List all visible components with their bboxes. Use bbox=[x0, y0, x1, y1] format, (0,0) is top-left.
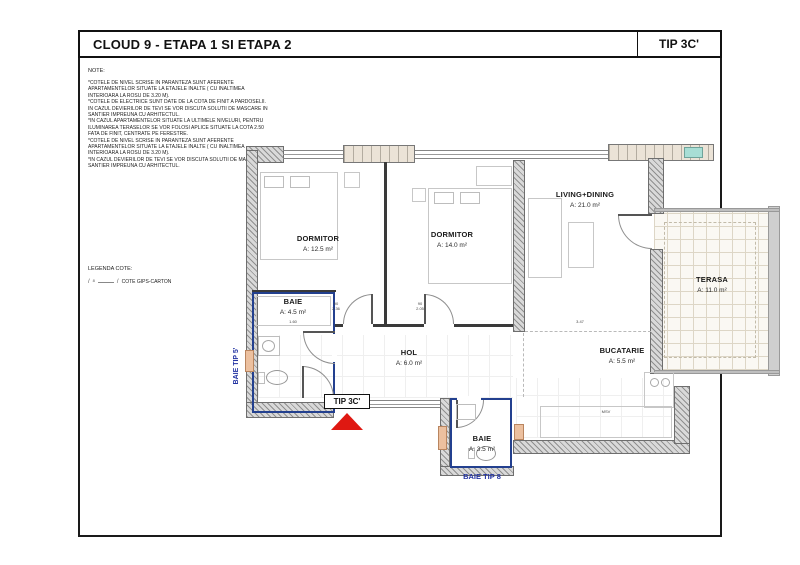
wall-between-bedrooms bbox=[384, 162, 387, 326]
room-label-baie-1: BAIE A: 4.5 m² bbox=[280, 297, 306, 316]
toilet-tank bbox=[258, 372, 265, 384]
legend-tick-icon: / bbox=[88, 279, 90, 285]
dim-baie1-width: 1.60 bbox=[289, 320, 297, 325]
legend-tick-icon: / bbox=[117, 279, 119, 285]
sheet-border-bottom bbox=[78, 535, 722, 537]
window-hall-south bbox=[368, 400, 442, 408]
wall-living-terrace bbox=[650, 249, 663, 374]
room-name: HOL bbox=[396, 348, 422, 357]
wall-hall-north-b bbox=[373, 324, 424, 327]
kitchen-counter-right bbox=[644, 372, 674, 408]
window-glass-top-right bbox=[684, 147, 703, 158]
door-arc-bedroom1 bbox=[343, 294, 373, 324]
baie-tip8-label: BAIE TIP 8 bbox=[463, 472, 501, 481]
legend-heading: LEGENDA COTE: bbox=[88, 266, 132, 272]
dim-door1: 90 2.36 bbox=[332, 302, 340, 312]
room-label-dormitor-2: DORMITOR A: 14.0 m² bbox=[431, 230, 473, 249]
sink-fixture bbox=[456, 404, 476, 420]
title-bar: CLOUD 9 - ETAPA 1 SI ETAPA 2 TIP 3C' bbox=[78, 30, 722, 58]
wall-fixture bbox=[514, 424, 524, 440]
pillow bbox=[434, 192, 454, 204]
note-heading: NOTE: bbox=[88, 68, 105, 74]
door-leaf-bedroom1 bbox=[371, 294, 373, 324]
room-name: BAIE bbox=[469, 434, 495, 443]
room-name: DORMITOR bbox=[297, 234, 339, 243]
door-leaf-bedroom2 bbox=[424, 294, 426, 324]
wall-hall-north-a bbox=[335, 324, 343, 327]
legend-line-icon bbox=[98, 282, 114, 283]
window-dormitor1 bbox=[283, 150, 343, 159]
door-leaf-bathroom1 bbox=[303, 331, 335, 333]
wall-terrace-top bbox=[654, 208, 780, 212]
wall-fixture bbox=[438, 426, 447, 450]
wall-kitchen-bottom bbox=[513, 440, 690, 454]
room-label-living: LIVING+DINING A: 21.0 m² bbox=[556, 190, 614, 209]
entrance-marker-icon bbox=[331, 413, 363, 430]
project-title: CLOUD 9 - ETAPA 1 SI ETAPA 2 bbox=[80, 37, 637, 52]
room-label-baie-2: BAIE A: 3.5 m² bbox=[469, 434, 495, 453]
sheet-border-left bbox=[78, 30, 80, 537]
nightstand bbox=[412, 188, 426, 202]
legend-item-label: COTE GIPS-CARTON bbox=[122, 279, 172, 285]
sink-bowl bbox=[262, 340, 275, 352]
divider-living-kitchen bbox=[525, 331, 651, 332]
room-label-hol: HOL A: 6.0 m² bbox=[396, 348, 422, 367]
pillow bbox=[264, 176, 284, 188]
wall-pier-top bbox=[343, 145, 415, 163]
room-name: TERASA bbox=[696, 275, 728, 284]
legend-number: 8 bbox=[93, 278, 95, 283]
pillow bbox=[460, 192, 480, 204]
window-living bbox=[513, 150, 608, 159]
legend-row: / 8 / COTE GIPS-CARTON bbox=[88, 279, 171, 285]
room-label-bucatarie: BUCATARIE A: 5.5 m² bbox=[600, 346, 645, 365]
room-area: A: 4.5 m² bbox=[280, 309, 306, 316]
room-name: BAIE bbox=[280, 297, 306, 306]
room-area: A: 11.0 m² bbox=[696, 287, 728, 294]
room-name: LIVING+DINING bbox=[556, 190, 614, 199]
wall-right-upper bbox=[648, 158, 664, 214]
table-outline bbox=[568, 222, 594, 268]
wall-hall-north-c bbox=[454, 324, 513, 327]
wall-terrace-right bbox=[768, 206, 780, 376]
door-arc-bedroom2 bbox=[424, 294, 454, 324]
nightstand bbox=[344, 172, 360, 188]
door-leaf-terrace bbox=[618, 214, 652, 216]
room-area: A: 5.5 m² bbox=[600, 358, 645, 365]
baie-tip5-label: BAIE TIP 5' bbox=[233, 330, 245, 402]
pillow bbox=[290, 176, 310, 188]
dim-living: 3.47 bbox=[576, 320, 584, 325]
room-area: A: 14.0 m² bbox=[431, 242, 473, 249]
door-leaf-entrance bbox=[302, 366, 304, 398]
toilet-fixture bbox=[266, 370, 288, 385]
wall-fixture bbox=[245, 350, 254, 372]
dim-kitchen-note: MSV bbox=[602, 410, 611, 415]
room-label-terasa: TERASA A: 11.0 m² bbox=[696, 275, 728, 294]
room-area: A: 21.0 m² bbox=[556, 202, 614, 209]
apartment-type-title: TIP 3C' bbox=[637, 32, 720, 56]
room-area: A: 6.0 m² bbox=[396, 360, 422, 367]
kitchen-sink-bowl bbox=[661, 378, 670, 387]
room-name: BUCATARIE bbox=[600, 346, 645, 355]
room-label-dormitor-1: DORMITOR A: 12.5 m² bbox=[297, 234, 339, 253]
kitchen-sink-bowl bbox=[650, 378, 659, 387]
wall-kitchen-right bbox=[674, 386, 690, 444]
wardrobe-outline bbox=[476, 166, 512, 186]
door-arc-terrace bbox=[618, 215, 652, 249]
room-area: A: 12.5 m² bbox=[297, 246, 339, 253]
room-area: A: 3.5 m² bbox=[469, 446, 495, 453]
unit-type-box: TIP 3C' bbox=[324, 394, 370, 409]
divider-hall-kitchen bbox=[523, 333, 524, 397]
wall-bedroom2-living bbox=[513, 160, 525, 332]
sofa-outline bbox=[528, 198, 562, 278]
dim-door2: 90 2.05 bbox=[416, 302, 424, 312]
room-name: DORMITOR bbox=[431, 230, 473, 239]
window-dormitor2 bbox=[415, 150, 513, 159]
